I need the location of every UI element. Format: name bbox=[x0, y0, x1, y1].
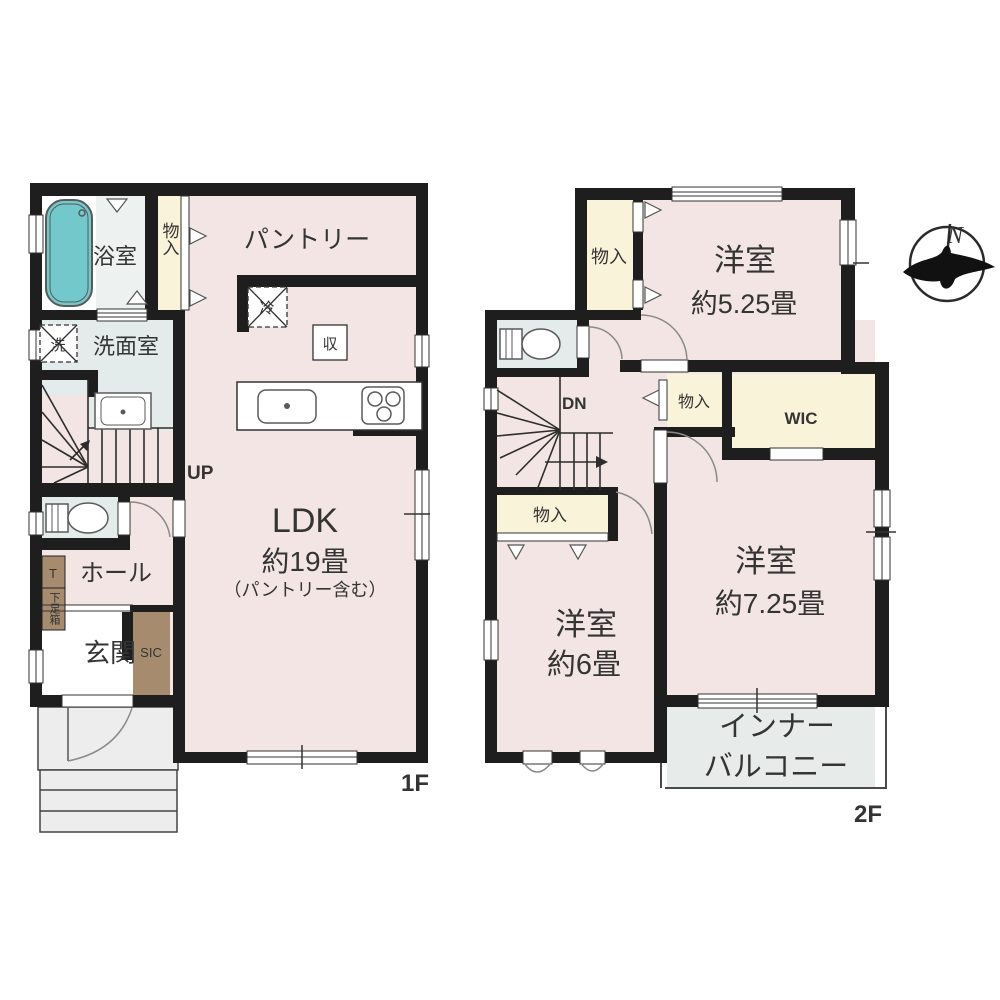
floor2-fixtures bbox=[500, 329, 560, 359]
compass: N bbox=[903, 223, 995, 301]
washroom-label: 洗面室 bbox=[93, 334, 159, 359]
kitchen-counter bbox=[237, 382, 422, 430]
porch bbox=[38, 707, 178, 770]
ldk-note: （パントリー含む） bbox=[224, 580, 387, 600]
floorplan-canvas: 浴室 物入 パントリー 洗 洗面室 冷 収 UP ホール T 下足箱 玄関 SI… bbox=[0, 0, 1000, 1000]
entrance-label: 玄関 bbox=[84, 638, 136, 668]
sic-label: SIC bbox=[140, 645, 162, 660]
vanity-sink bbox=[95, 393, 151, 429]
bathtub bbox=[46, 200, 92, 306]
toilet-1f bbox=[46, 503, 108, 533]
floor2-plan: 物入 洋室 約5.25畳 DN 物入 WIC 洋室 約7.25畳 物入 洋室 約… bbox=[484, 187, 896, 828]
floor1-plan: 浴室 物入 パントリー 洗 洗面室 冷 収 UP ホール T 下足箱 玄関 SI… bbox=[29, 183, 430, 832]
bedroom1-name: 洋室 bbox=[714, 243, 776, 278]
floor2-label: 2F bbox=[854, 801, 882, 828]
balcony-label-1: インナー bbox=[719, 711, 835, 743]
pantry-label: パントリー bbox=[244, 226, 370, 254]
toilet-2f bbox=[500, 329, 560, 359]
closet-c-label: 物入 bbox=[533, 506, 567, 525]
storage-label: 収 bbox=[322, 336, 337, 353]
closet-label-1f: 物入 bbox=[160, 222, 180, 256]
stairs-up-label: UP bbox=[187, 463, 214, 484]
hall-label: ホール bbox=[80, 560, 152, 587]
fridge-label: 冷 bbox=[259, 300, 274, 317]
bedroom2-size: 約7.25畳 bbox=[715, 588, 826, 619]
closet-b-label: 物入 bbox=[678, 393, 710, 411]
laundry-label: 洗 bbox=[50, 337, 65, 354]
stairs-dn-label: DN bbox=[562, 394, 587, 413]
ldk-size: 約19畳 bbox=[261, 546, 348, 577]
ldk-name: LDK bbox=[272, 502, 338, 540]
bedroom3-name: 洋室 bbox=[555, 607, 617, 642]
compass-north-label: N bbox=[946, 223, 965, 249]
bedroom3-size: 約6畳 bbox=[547, 648, 621, 681]
closet-a-label: 物入 bbox=[591, 247, 627, 267]
floor1-label: 1F bbox=[401, 770, 429, 797]
bathroom-label: 浴室 bbox=[93, 244, 137, 269]
wic-label: WIC bbox=[784, 409, 817, 428]
balcony-label-2: バルコニー bbox=[704, 751, 848, 783]
bedroom2-name: 洋室 bbox=[735, 544, 797, 579]
shoe-cabinet-label: 下足箱 bbox=[48, 592, 61, 626]
bedroom1-size: 約5.25畳 bbox=[691, 289, 798, 319]
floorplan-page: 浴室 物入 パントリー 洗 洗面室 冷 収 UP ホール T 下足箱 玄関 SI… bbox=[0, 0, 1000, 1000]
shoe-t-label: T bbox=[49, 566, 57, 581]
porch-steps bbox=[40, 770, 177, 832]
